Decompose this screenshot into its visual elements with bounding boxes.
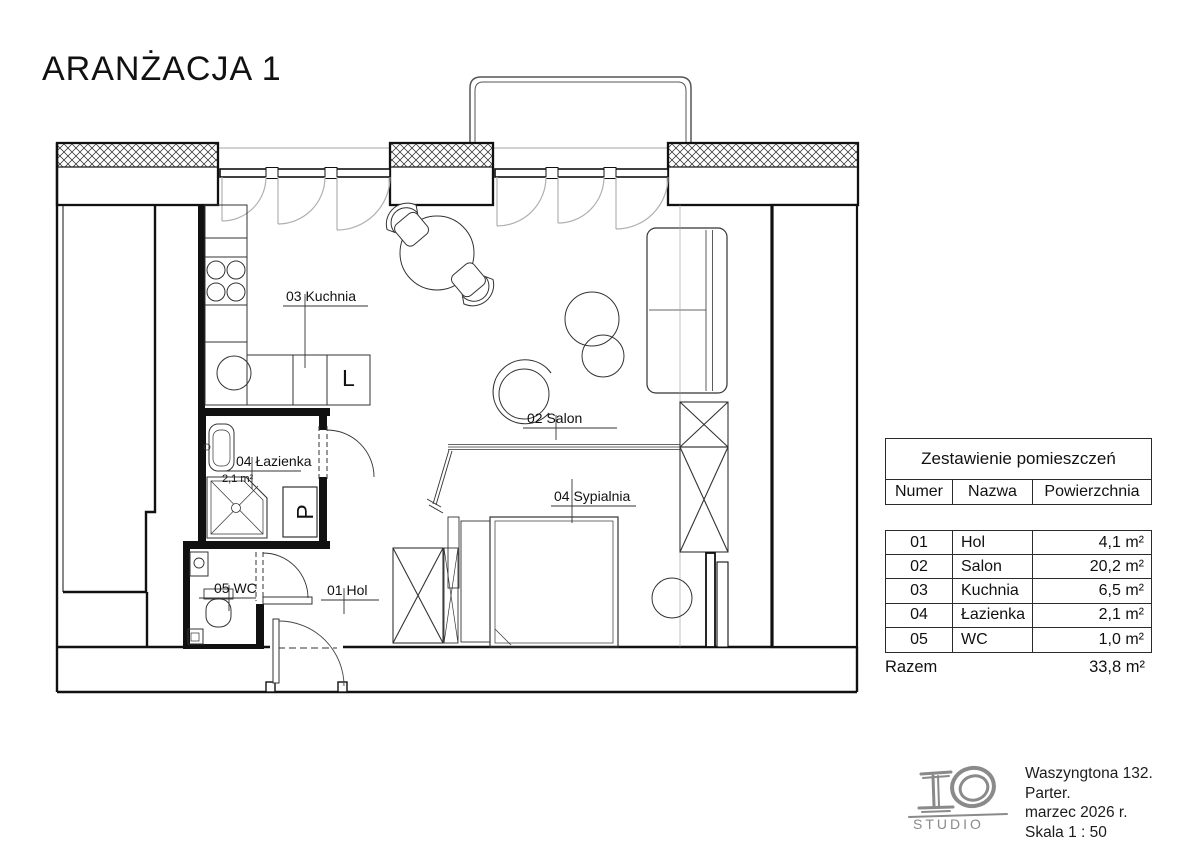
room-label-kuchnia: 03 Kuchnia: [283, 288, 368, 368]
room-labels: 03 Kuchnia 02 Salon 04 Sypialnia 04 Łazi…: [199, 288, 636, 614]
row-name: Hol: [953, 531, 1033, 554]
room-label-hol: 01 Hol: [321, 582, 379, 614]
stool: [652, 578, 692, 618]
floor-drain: [188, 629, 203, 644]
svg-text:04 Łazienka: 04 Łazienka: [236, 453, 312, 469]
bathroom-sink: [204, 424, 234, 471]
page: L: [0, 0, 1200, 849]
bed: [448, 517, 618, 647]
row-area: 6,5 m²: [1033, 579, 1151, 602]
column-numer: Numer: [886, 480, 953, 504]
row-area: 2,1 m²: [1033, 604, 1151, 627]
entrance-door: [273, 619, 344, 686]
row-name: Łazienka: [953, 604, 1033, 627]
svg-text:02 Salon: 02 Salon: [527, 410, 582, 426]
footer-line-address: Waszyngtona 132.: [1025, 764, 1153, 784]
row-number: 04: [886, 604, 953, 627]
room-label-salon: 02 Salon: [523, 410, 617, 440]
floor-plan: L: [0, 0, 1200, 849]
washer-label: P: [292, 504, 318, 519]
column-nazwa: Nazwa: [953, 480, 1033, 504]
column-powierzchnia: Powierzchnia: [1033, 480, 1151, 504]
studio-logo-text: STUDIO: [913, 816, 984, 832]
room-label-wc: 05 WC: [199, 580, 257, 611]
wall-piers: [57, 143, 858, 205]
balcony-railing: [470, 77, 691, 147]
table-row: 03 Kuchnia 6,5 m²: [886, 579, 1151, 603]
coffee-tables: [565, 292, 624, 377]
page-title: ARANŻACJA 1: [42, 50, 282, 89]
right-wall-column: [772, 205, 857, 647]
bottom-wall: [57, 647, 857, 692]
wc-door: [256, 552, 312, 604]
wc-vent: [190, 552, 208, 576]
washing-machine: P: [283, 487, 318, 537]
room-area-lazienka: 2,1 m²: [222, 473, 254, 485]
wardrobe-right: [680, 402, 728, 552]
total-label: Razem: [885, 658, 937, 677]
kitchen-sink: [217, 356, 251, 390]
svg-text:04 Sypialnia: 04 Sypialnia: [554, 488, 630, 504]
table-row: 02 Salon 20,2 m²: [886, 555, 1151, 579]
fridge-label: L: [342, 365, 355, 391]
summary-table-title: Zestawienie pomieszczeń: [886, 439, 1151, 480]
row-area: 1,0 m²: [1033, 628, 1151, 652]
row-number: 05: [886, 628, 953, 652]
summary-table-columns: Numer Nazwa Powierzchnia: [886, 480, 1151, 504]
svg-text:03 Kuchnia: 03 Kuchnia: [286, 288, 356, 304]
open-door-leaf: [706, 553, 728, 647]
kitchen-west-wall: [198, 205, 205, 408]
studio-logo-icon: STUDIO: [901, 762, 1011, 846]
svg-text:01 Hol: 01 Hol: [327, 582, 367, 598]
row-name: WC: [953, 628, 1033, 652]
footer-info: Waszyngtona 132. Parter. marzec 2026 r. …: [1025, 764, 1153, 842]
bathroom-door: [319, 426, 374, 479]
row-number: 02: [886, 555, 953, 578]
total-value: 33,8 m²: [1089, 658, 1152, 677]
summary-table-body: 01 Hol 4,1 m² 02 Salon 20,2 m² 03 Kuchni…: [885, 530, 1152, 653]
stove-burners: [207, 261, 245, 301]
shower: [207, 477, 267, 538]
table-row: 05 WC 1,0 m²: [886, 628, 1151, 652]
row-area: 4,1 m²: [1033, 531, 1151, 554]
row-area: 20,2 m²: [1033, 555, 1151, 578]
footer-line-floor: Parter.: [1025, 784, 1153, 804]
kitchen-window: [220, 168, 390, 231]
row-number: 03: [886, 579, 953, 602]
summary-total-row: Razem 33,8 m²: [885, 656, 1152, 678]
footer-line-date: marzec 2026 r.: [1025, 803, 1153, 823]
footer-line-scale: Skala 1 : 50: [1025, 823, 1153, 843]
table-row: 04 Łazienka 2,1 m²: [886, 604, 1151, 628]
row-name: Salon: [953, 555, 1033, 578]
row-name: Kuchnia: [953, 579, 1033, 602]
table-row: 01 Hol 4,1 m²: [886, 531, 1151, 555]
salon-window: [495, 168, 668, 230]
sofa: [647, 228, 727, 393]
row-number: 01: [886, 531, 953, 554]
svg-text:05 WC: 05 WC: [214, 580, 257, 596]
room-label-lazienka: 04 Łazienka 2,1 m²: [222, 453, 312, 489]
summary-table-header: Zestawienie pomieszczeń Numer Nazwa Powi…: [885, 438, 1152, 505]
